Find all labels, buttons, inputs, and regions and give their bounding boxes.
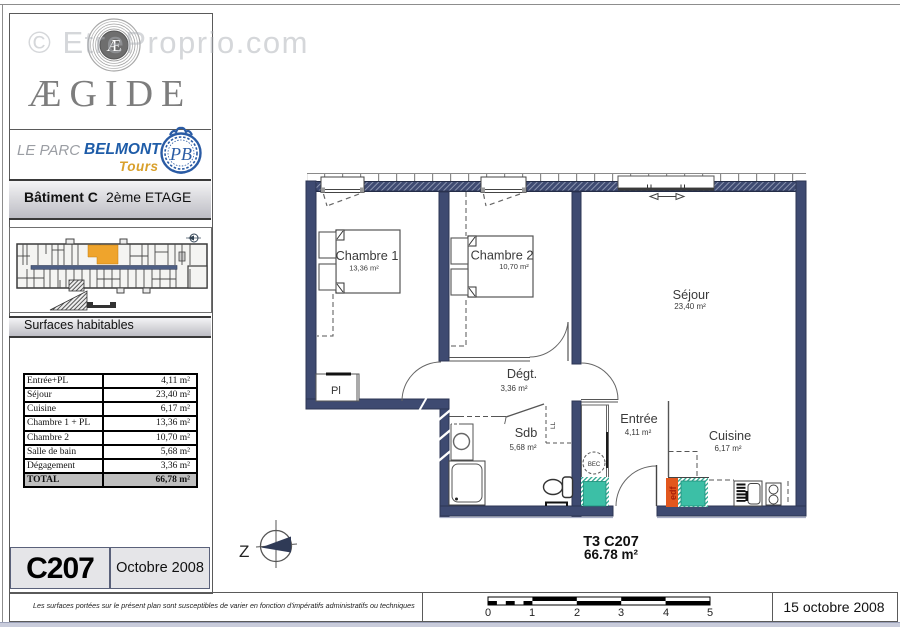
svg-text:4: 4: [663, 607, 669, 619]
svg-text:0: 0: [485, 607, 491, 619]
svg-text:5: 5: [707, 607, 713, 619]
svg-text:3: 3: [618, 607, 624, 619]
svg-text:2: 2: [574, 607, 580, 619]
svg-text:1: 1: [529, 607, 535, 619]
